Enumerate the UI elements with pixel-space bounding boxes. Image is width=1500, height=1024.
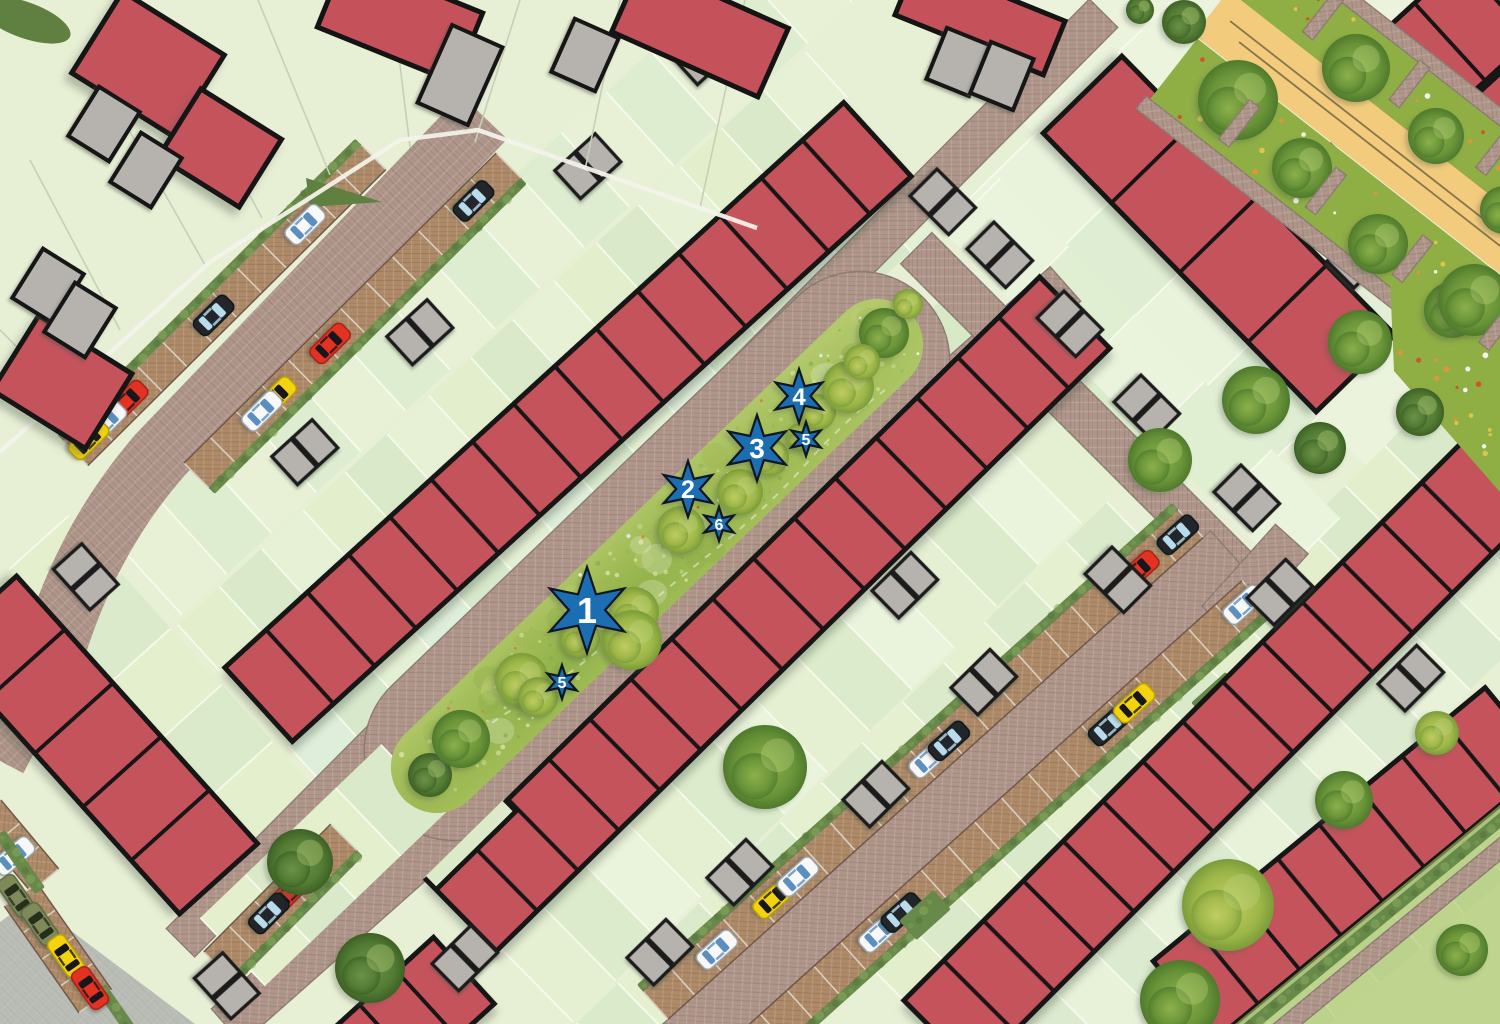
- svg-text:1: 1: [577, 590, 597, 631]
- svg-text:6: 6: [715, 517, 724, 534]
- svg-text:4: 4: [792, 384, 806, 411]
- svg-text:3: 3: [749, 433, 765, 464]
- svg-text:5: 5: [802, 432, 811, 449]
- svg-text:5: 5: [558, 675, 567, 692]
- svg-text:2: 2: [681, 476, 695, 504]
